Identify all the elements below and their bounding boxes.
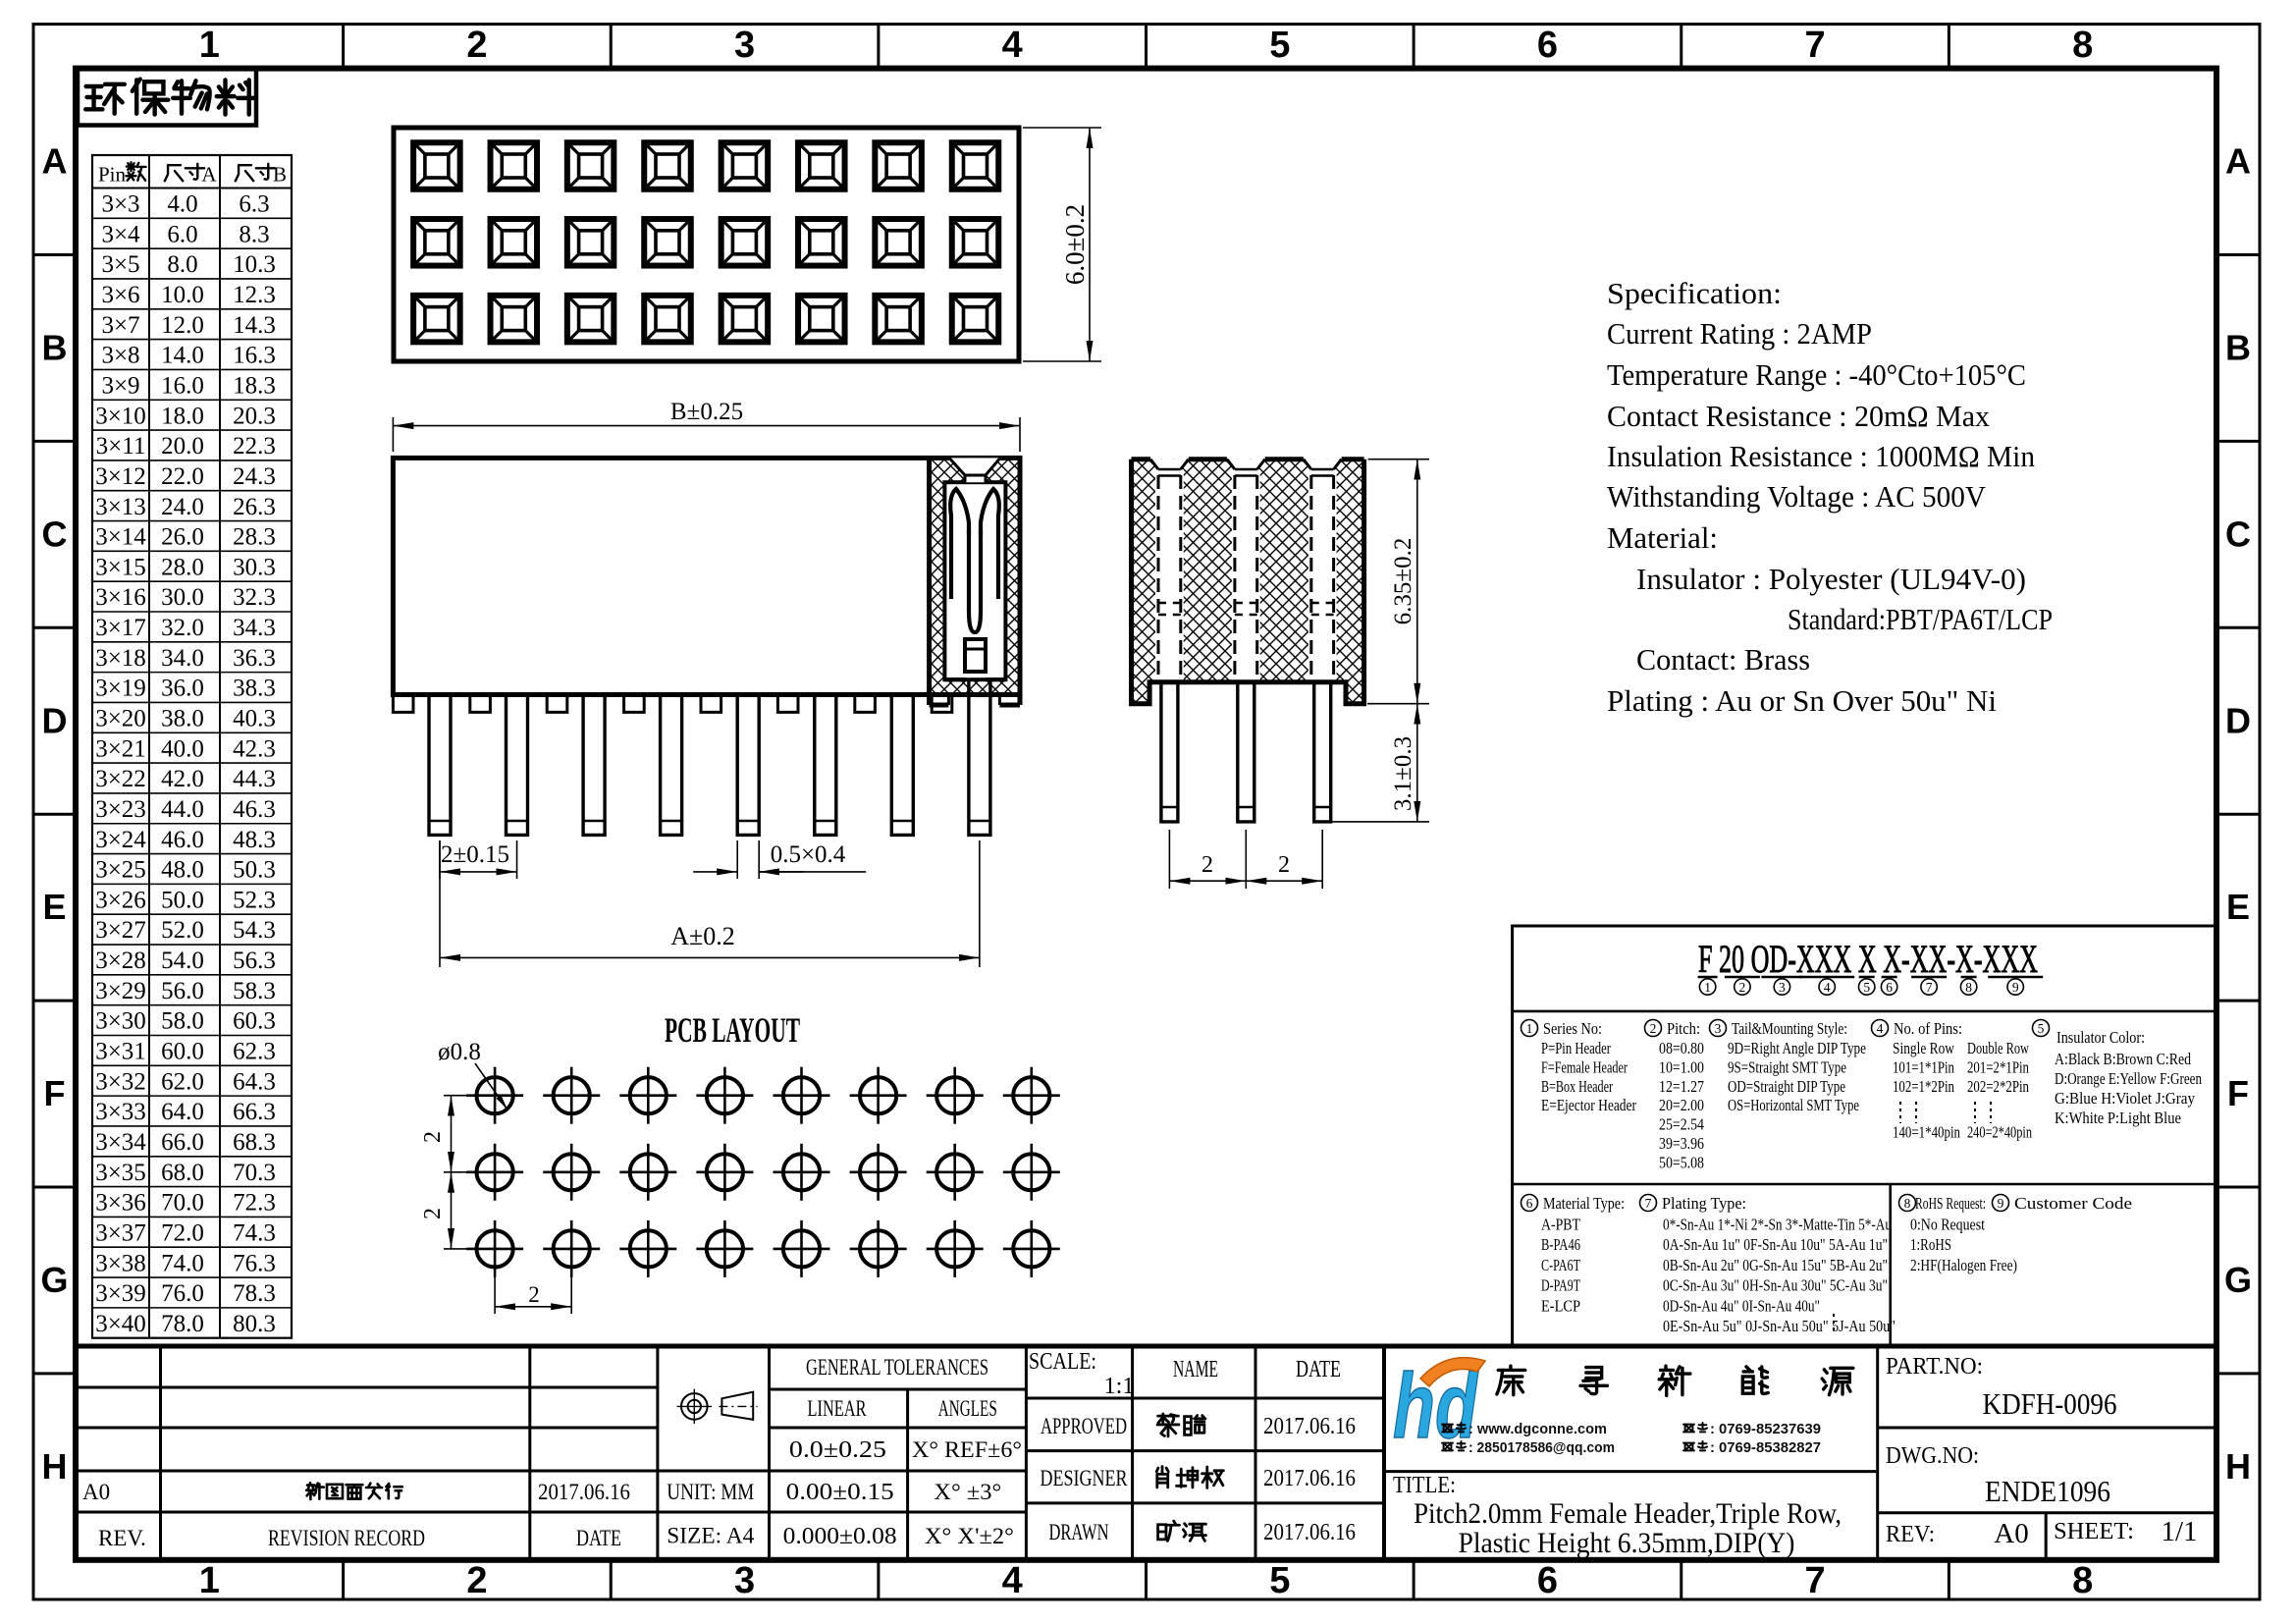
svg-text:3×22: 3×22	[95, 766, 146, 792]
svg-text:20=2.00: 20=2.00	[1659, 1096, 1704, 1114]
svg-text:40.0: 40.0	[161, 735, 204, 762]
svg-text:E=Ejector Header: E=Ejector Header	[1541, 1096, 1636, 1114]
svg-text:5: 5	[1269, 25, 1290, 66]
svg-text:3×5: 3×5	[101, 251, 139, 278]
svg-text:2: 2	[1739, 980, 1746, 995]
svg-text:Series No:: Series No:	[1543, 1019, 1602, 1038]
svg-text:D: D	[42, 700, 68, 740]
svg-text:SCALE:: SCALE:	[1029, 1349, 1096, 1375]
svg-text:B: B	[42, 327, 68, 367]
svg-text:202=2*2Pin: 202=2*2Pin	[1967, 1077, 2029, 1096]
svg-text:10.3: 10.3	[233, 251, 276, 278]
svg-text:REVISION RECORD: REVISION RECORD	[268, 1526, 425, 1550]
svg-text:C: C	[42, 514, 68, 554]
svg-text:201=2*1Pin: 201=2*1Pin	[1967, 1057, 2029, 1076]
svg-text:3×36: 3×36	[95, 1190, 146, 1217]
svg-text:3×12: 3×12	[95, 463, 146, 490]
svg-text:3×40: 3×40	[95, 1311, 146, 1337]
svg-text:4: 4	[1002, 1560, 1023, 1601]
svg-text:6.3: 6.3	[239, 191, 269, 218]
svg-text:B-PA46: B-PA46	[1541, 1235, 1580, 1254]
svg-text:KDFH-0096: KDFH-0096	[1983, 1386, 2117, 1421]
svg-text:1: 1	[199, 25, 220, 66]
svg-text:10.0: 10.0	[161, 282, 204, 308]
svg-text:SHEET:: SHEET:	[2054, 1519, 2134, 1544]
svg-text:0D-Sn-Au 4u" 0I-Sn-Au 40u": 0D-Sn-Au 4u" 0I-Sn-Au 40u"	[1663, 1296, 1820, 1315]
svg-text:18.0: 18.0	[161, 403, 204, 429]
svg-text:Standard:PBT/PA6T/LCP: Standard:PBT/PA6T/LCP	[1788, 602, 2053, 636]
svg-text:6: 6	[1886, 980, 1893, 995]
svg-text:3×33: 3×33	[95, 1099, 146, 1125]
svg-text:32.0: 32.0	[161, 615, 204, 641]
svg-text:6: 6	[1537, 1560, 1558, 1601]
svg-text:1/1: 1/1	[2161, 1516, 2197, 1547]
svg-text:3: 3	[1715, 1021, 1722, 1036]
svg-text:50.3: 50.3	[233, 857, 276, 884]
svg-text:1: 1	[1526, 1021, 1533, 1036]
svg-text:DESIGNER: DESIGNER	[1041, 1466, 1129, 1490]
svg-text:7: 7	[1926, 980, 1933, 995]
svg-text:UNIT: MM: UNIT: MM	[667, 1480, 754, 1504]
svg-text:68.0: 68.0	[161, 1160, 204, 1186]
svg-text:H: H	[42, 1446, 68, 1487]
svg-text:D: D	[2225, 700, 2251, 740]
svg-text:1: 1	[1704, 980, 1711, 995]
svg-text:52.3: 52.3	[233, 887, 276, 913]
svg-text:3×17: 3×17	[95, 615, 146, 641]
svg-text:3×23: 3×23	[95, 796, 146, 823]
svg-text:4: 4	[1002, 25, 1023, 66]
svg-text:DATE: DATE	[576, 1526, 621, 1550]
svg-text:: 0769-85382827: : 0769-85382827	[1710, 1439, 1821, 1456]
svg-text:2: 2	[1201, 852, 1213, 878]
svg-text:3×9: 3×9	[101, 373, 139, 400]
svg-text:Plating : Au or Sn Over 50u" N: Plating : Au or Sn Over 50u" Ni	[1607, 683, 1997, 718]
svg-text:1: 1	[199, 1560, 220, 1601]
svg-text:DRAWN: DRAWN	[1049, 1520, 1109, 1544]
svg-text:0.5×0.4: 0.5×0.4	[771, 841, 846, 868]
svg-text:2: 2	[1650, 1021, 1657, 1036]
svg-text:0A-Sn-Au 1u" 0F-Sn-Au 10u" 5A: 0A-Sn-Au 1u" 0F-Sn-Au 10u" 5A-Au 1u"	[1663, 1235, 1888, 1254]
svg-text:60.0: 60.0	[161, 1039, 204, 1065]
svg-text:2±0.15: 2±0.15	[441, 841, 509, 868]
svg-text:4: 4	[1824, 980, 1831, 995]
svg-text:3×27: 3×27	[95, 917, 146, 944]
svg-text:APPROVED: APPROVED	[1041, 1414, 1127, 1438]
svg-text:8.0: 8.0	[167, 251, 197, 278]
svg-text:42.3: 42.3	[233, 735, 276, 762]
svg-text:14.3: 14.3	[233, 312, 276, 339]
svg-text:Current Rating : 2AMP: Current Rating : 2AMP	[1607, 316, 1872, 351]
svg-text:Pin: Pin	[98, 163, 127, 187]
svg-text:3×21: 3×21	[95, 735, 146, 762]
svg-text:2017.06.16: 2017.06.16	[1263, 1520, 1356, 1545]
svg-text:39=3.96: 39=3.96	[1659, 1134, 1704, 1153]
svg-text:64.0: 64.0	[161, 1099, 204, 1125]
svg-text:36.3: 36.3	[233, 645, 276, 672]
svg-text:50=5.08: 50=5.08	[1659, 1153, 1704, 1171]
svg-text:A0: A0	[82, 1480, 110, 1504]
svg-text:7: 7	[1804, 25, 1825, 66]
svg-text:0B-Sn-Au 2u" 0G-Sn-Au 15u" 5B: 0B-Sn-Au 2u" 0G-Sn-Au 15u" 5B-Au 2u"	[1663, 1256, 1888, 1274]
svg-text:Pitch:: Pitch:	[1667, 1019, 1700, 1038]
svg-text:4.0: 4.0	[167, 191, 197, 218]
svg-text:: www.dgconne.com: : www.dgconne.com	[1468, 1421, 1607, 1437]
svg-text:Customer Code: Customer Code	[2014, 1194, 2132, 1213]
svg-text:REV.: REV.	[98, 1526, 146, 1550]
svg-text:A: A	[2225, 141, 2251, 182]
svg-text:9: 9	[1998, 1196, 2004, 1211]
svg-text:2: 2	[466, 25, 487, 66]
svg-text:2: 2	[420, 1208, 446, 1219]
svg-text:Contact Resistance : 20mΩ Max: Contact Resistance : 20mΩ Max	[1607, 399, 1990, 433]
svg-text:Material:: Material:	[1607, 520, 1718, 555]
svg-text:F 20 OD-XXX X X-XX-X-XXX: F 20 OD-XXX X X-XX-X-XXX	[1698, 937, 2038, 981]
svg-text:42.0: 42.0	[161, 766, 204, 792]
svg-text:78.0: 78.0	[161, 1311, 204, 1337]
svg-text:Tail&Mounting Style:: Tail&Mounting Style:	[1732, 1019, 1847, 1038]
svg-text:7: 7	[1804, 1560, 1825, 1601]
svg-text:9D=Right Angle DIP Type: 9D=Right Angle DIP Type	[1728, 1039, 1866, 1057]
svg-text:2017.06.16: 2017.06.16	[538, 1480, 630, 1504]
svg-text:Temperature Range : -40°Cto+10: Temperature Range : -40°Cto+105°C	[1607, 357, 2026, 392]
svg-text:72.3: 72.3	[233, 1190, 276, 1217]
svg-text:5: 5	[1863, 980, 1870, 995]
svg-text:28.0: 28.0	[161, 554, 204, 580]
svg-text:54.0: 54.0	[161, 947, 204, 974]
svg-text:3×34: 3×34	[95, 1129, 146, 1156]
svg-text:0:No Request: 0:No Request	[1910, 1216, 1985, 1234]
svg-text:Plastic Height 6.35mm,DIP(Y): Plastic Height 6.35mm,DIP(Y)	[1459, 1527, 1795, 1559]
svg-text:A: A	[201, 163, 217, 187]
svg-text:Specification:: Specification:	[1607, 276, 1782, 310]
svg-text:A0: A0	[1994, 1518, 2028, 1549]
svg-text:66.3: 66.3	[233, 1099, 276, 1125]
svg-text:C: C	[2225, 514, 2251, 554]
svg-text:RoHS Request:: RoHS Request:	[1915, 1194, 1986, 1213]
svg-text:C-PA6T: C-PA6T	[1541, 1256, 1580, 1274]
svg-text:3×30: 3×30	[95, 1008, 146, 1035]
svg-text:3×20: 3×20	[95, 706, 146, 732]
svg-text:B: B	[273, 163, 287, 187]
svg-text:2: 2	[528, 1282, 540, 1307]
svg-text:G: G	[2224, 1260, 2252, 1300]
svg-text:22.3: 22.3	[233, 433, 276, 460]
svg-text:3×16: 3×16	[95, 584, 146, 611]
svg-text:F: F	[44, 1073, 66, 1113]
svg-text:3×29: 3×29	[95, 978, 146, 1004]
svg-text:6.35±0.2: 6.35±0.2	[1390, 538, 1416, 625]
svg-text:48.0: 48.0	[161, 857, 204, 884]
svg-text:P=Pin Header: P=Pin Header	[1541, 1039, 1611, 1057]
svg-text:X° ±3°: X° ±3°	[934, 1480, 1001, 1504]
svg-text:3.1±0.3: 3.1±0.3	[1390, 736, 1416, 811]
svg-text:SIZE: A4: SIZE: A4	[667, 1523, 755, 1547]
svg-text:62.0: 62.0	[161, 1068, 204, 1095]
svg-text:Plating Type:: Plating Type:	[1662, 1194, 1746, 1213]
svg-text:E: E	[2226, 887, 2250, 927]
svg-text:34.0: 34.0	[161, 645, 204, 672]
svg-text:74.0: 74.0	[161, 1250, 204, 1276]
svg-text:8.3: 8.3	[239, 221, 269, 247]
svg-text:76.0: 76.0	[161, 1280, 204, 1307]
svg-text:3×24: 3×24	[95, 827, 146, 853]
svg-text:F=Female Header: F=Female Header	[1541, 1057, 1628, 1076]
svg-text:0.00±0.15: 0.00±0.15	[786, 1480, 894, 1505]
svg-text:Double Row: Double Row	[1967, 1039, 2029, 1057]
svg-text:6: 6	[1537, 25, 1558, 66]
svg-text:DATE: DATE	[1296, 1357, 1341, 1382]
svg-text:6.0±0.2: 6.0±0.2	[1060, 204, 1090, 285]
svg-text:12.0: 12.0	[161, 312, 204, 339]
svg-text:64.3: 64.3	[233, 1068, 276, 1095]
svg-text:E-LCP: E-LCP	[1541, 1296, 1580, 1315]
svg-text:3×10: 3×10	[95, 403, 146, 429]
svg-text:3×14: 3×14	[95, 524, 146, 551]
svg-text:26.0: 26.0	[161, 524, 204, 551]
svg-text:56.0: 56.0	[161, 978, 204, 1004]
svg-text:20.3: 20.3	[233, 403, 276, 429]
svg-text:102=1*2Pin: 102=1*2Pin	[1893, 1077, 1954, 1096]
svg-text:3×37: 3×37	[95, 1220, 146, 1247]
svg-text:78.3: 78.3	[233, 1280, 276, 1307]
svg-text:68.3: 68.3	[233, 1129, 276, 1156]
svg-text:0E-Sn-Au 5u" 0J-Sn-Au 50u" 5J: 0E-Sn-Au 5u" 0J-Sn-Au 50u" 5J-Au 50u"	[1663, 1317, 1896, 1335]
svg-text:52.0: 52.0	[161, 917, 204, 944]
svg-text:G:Blue H:Violet J:Gray: G:Blue H:Violet J:Gray	[2055, 1089, 2196, 1108]
svg-text:Insulator Color:: Insulator Color:	[2056, 1028, 2145, 1047]
svg-text:74.3: 74.3	[233, 1220, 276, 1247]
svg-text:101=1*1Pin: 101=1*1Pin	[1893, 1057, 1954, 1076]
svg-text:K:White P:Light Blue: K:White P:Light Blue	[2055, 1109, 2181, 1127]
svg-text:9: 9	[2012, 980, 2019, 995]
svg-text:8: 8	[1965, 980, 1972, 995]
svg-text:3×28: 3×28	[95, 947, 146, 974]
svg-text:3: 3	[734, 25, 755, 66]
svg-text:2017.06.16: 2017.06.16	[1263, 1466, 1356, 1491]
svg-text:30.0: 30.0	[161, 584, 204, 611]
svg-text:24.3: 24.3	[233, 463, 276, 490]
svg-text:1:RoHS: 1:RoHS	[1910, 1235, 1951, 1254]
svg-text:44.0: 44.0	[161, 796, 204, 823]
svg-text:Insulation Resistance : 1000MΩ: Insulation Resistance : 1000MΩ Min	[1607, 439, 2035, 473]
svg-text:60.3: 60.3	[233, 1008, 276, 1035]
svg-text:1:1: 1:1	[1104, 1374, 1135, 1399]
svg-text:3×7: 3×7	[101, 312, 139, 339]
svg-text:3×3: 3×3	[101, 191, 139, 218]
svg-text:28.3: 28.3	[233, 524, 276, 551]
svg-text:48.3: 48.3	[233, 827, 276, 853]
svg-text:ø0.8: ø0.8	[438, 1039, 481, 1065]
svg-text:16.0: 16.0	[161, 373, 204, 400]
svg-text:56.3: 56.3	[233, 947, 276, 974]
svg-text:PCB LAYOUT: PCB LAYOUT	[665, 1010, 800, 1050]
svg-text:Single Row: Single Row	[1893, 1039, 1954, 1057]
svg-text:H: H	[2225, 1446, 2251, 1487]
svg-text:3×19: 3×19	[95, 676, 146, 702]
svg-text:30.3: 30.3	[233, 554, 276, 580]
svg-text:5: 5	[2038, 1021, 2045, 1036]
svg-text:G: G	[40, 1260, 68, 1300]
svg-text:3×15: 3×15	[95, 554, 146, 580]
svg-text:12=1.27: 12=1.27	[1659, 1077, 1704, 1096]
svg-text:58.3: 58.3	[233, 978, 276, 1004]
svg-text:B±0.25: B±0.25	[670, 399, 743, 425]
svg-text:10=1.00: 10=1.00	[1659, 1057, 1704, 1076]
svg-text:8: 8	[2072, 25, 2093, 66]
svg-text:3: 3	[1779, 980, 1786, 995]
svg-text:GENERAL TOLERANCES: GENERAL TOLERANCES	[806, 1355, 988, 1380]
svg-text:No. of Pins:: No. of Pins:	[1894, 1019, 1962, 1038]
svg-text:3×8: 3×8	[101, 343, 139, 369]
svg-text:: 2850178586@qq.com: : 2850178586@qq.com	[1468, 1439, 1615, 1456]
svg-text:B=Box Header: B=Box Header	[1541, 1077, 1613, 1096]
svg-text:2:HF(Halogen Free): 2:HF(Halogen Free)	[1910, 1256, 2017, 1274]
svg-text:36.0: 36.0	[161, 676, 204, 702]
svg-text:TITLE:: TITLE:	[1393, 1473, 1456, 1498]
svg-text:66.0: 66.0	[161, 1129, 204, 1156]
svg-text:62.3: 62.3	[233, 1039, 276, 1065]
svg-text:0C-Sn-Au 3u" 0H-Sn-Au 30u" 5C: 0C-Sn-Au 3u" 0H-Sn-Au 30u" 5C-Au 3u"	[1663, 1276, 1888, 1295]
svg-text:NAME: NAME	[1173, 1357, 1218, 1382]
svg-text:LINEAR: LINEAR	[808, 1396, 867, 1421]
svg-text:3×38: 3×38	[95, 1250, 146, 1276]
svg-text:80.3: 80.3	[233, 1311, 276, 1337]
svg-text:3×6: 3×6	[101, 282, 139, 308]
svg-text:140=1*40pin: 140=1*40pin	[1893, 1123, 1960, 1142]
svg-text:2: 2	[466, 1560, 487, 1601]
svg-text:A±0.2: A±0.2	[670, 922, 735, 950]
svg-text:3×4: 3×4	[101, 221, 140, 247]
svg-text:3×35: 3×35	[95, 1160, 146, 1186]
svg-text:9S=Straight SMT Type: 9S=Straight SMT Type	[1728, 1057, 1846, 1076]
svg-text:DWG.NO:: DWG.NO:	[1886, 1443, 1979, 1469]
svg-text:3×26: 3×26	[95, 887, 146, 913]
svg-text:34.3: 34.3	[233, 615, 276, 641]
svg-text:Material Type:: Material Type:	[1543, 1194, 1625, 1213]
svg-text:46.0: 46.0	[161, 827, 204, 853]
svg-text:70.0: 70.0	[161, 1190, 204, 1217]
svg-text:3×25: 3×25	[95, 857, 146, 884]
svg-text:3×39: 3×39	[95, 1280, 146, 1307]
svg-text:Pitch2.0mm Female Header,Tripl: Pitch2.0mm Female Header,Triple Row,	[1414, 1497, 1842, 1530]
svg-text:6.0: 6.0	[167, 221, 197, 247]
svg-text:08=0.80: 08=0.80	[1659, 1039, 1704, 1057]
svg-text:Contact: Brass: Contact: Brass	[1636, 642, 1810, 677]
svg-text:72.0: 72.0	[161, 1220, 204, 1247]
svg-text:26.3: 26.3	[233, 494, 276, 520]
svg-text:70.3: 70.3	[233, 1160, 276, 1186]
svg-text:Insulator : Polyester (UL94V-0: Insulator : Polyester (UL94V-0)	[1636, 562, 2026, 596]
svg-text:F: F	[2227, 1073, 2249, 1113]
svg-text:25=2.54: 25=2.54	[1659, 1115, 1704, 1134]
svg-text:0*-Sn-Au 1*-Ni 2*-Sn 3*-Matte-: 0*-Sn-Au 1*-Ni 2*-Sn 3*-Matte-Tin 5*-Au	[1663, 1216, 1892, 1234]
svg-text:PART.NO:: PART.NO:	[1886, 1354, 1983, 1380]
svg-text:A: A	[42, 141, 68, 182]
svg-text:5: 5	[1269, 1560, 1290, 1601]
svg-text:6: 6	[1526, 1196, 1533, 1211]
svg-text:240=2*40pin: 240=2*40pin	[1967, 1123, 2032, 1142]
svg-text:50.0: 50.0	[161, 887, 204, 913]
svg-text:8: 8	[1904, 1196, 1911, 1211]
svg-text:12.3: 12.3	[233, 282, 276, 308]
svg-text:OD=Straight DIP Type: OD=Straight DIP Type	[1728, 1077, 1845, 1096]
svg-text:38.0: 38.0	[161, 706, 204, 732]
svg-text:OS=Horizontal SMT Type: OS=Horizontal SMT Type	[1728, 1096, 1859, 1114]
svg-text:44.3: 44.3	[233, 766, 276, 792]
svg-text:X° REF±6°: X° REF±6°	[912, 1437, 1022, 1462]
svg-text:3: 3	[734, 1560, 755, 1601]
svg-text:24.0: 24.0	[161, 494, 204, 520]
svg-text:32.3: 32.3	[233, 584, 276, 611]
svg-text:0.000±0.08: 0.000±0.08	[783, 1524, 897, 1549]
svg-text:3×31: 3×31	[95, 1039, 146, 1065]
svg-text:22.0: 22.0	[161, 463, 204, 490]
svg-text:54.3: 54.3	[233, 917, 276, 944]
svg-text:D:Orange E:Yellow F:Green: D:Orange E:Yellow F:Green	[2055, 1069, 2202, 1088]
svg-text:3×11: 3×11	[96, 433, 146, 460]
svg-text:A-PBT: A-PBT	[1541, 1216, 1580, 1234]
svg-text:REV:: REV:	[1886, 1522, 1935, 1547]
svg-text:14.0: 14.0	[161, 343, 204, 369]
svg-text:2: 2	[420, 1131, 446, 1143]
svg-text:A:Black B:Brown C:Red: A:Black B:Brown C:Red	[2055, 1050, 2192, 1068]
svg-text:2: 2	[1278, 852, 1290, 878]
svg-text:2017.06.16: 2017.06.16	[1263, 1414, 1356, 1439]
svg-text:0.0±0.25: 0.0±0.25	[789, 1437, 886, 1463]
svg-text:58.0: 58.0	[161, 1008, 204, 1035]
svg-text:4: 4	[1877, 1021, 1884, 1036]
svg-text:3×32: 3×32	[95, 1068, 146, 1095]
svg-text:20.0: 20.0	[161, 433, 204, 460]
svg-text:Withstanding Voltage : AC 500V: Withstanding Voltage : AC 500V	[1607, 479, 1987, 514]
svg-text:ENDE1096: ENDE1096	[1985, 1474, 2110, 1508]
svg-text:40.3: 40.3	[233, 706, 276, 732]
svg-text:B: B	[2225, 327, 2251, 367]
svg-text:18.3: 18.3	[233, 373, 276, 400]
svg-text:38.3: 38.3	[233, 676, 276, 702]
svg-text:D-PA9T: D-PA9T	[1541, 1276, 1580, 1295]
svg-text:E: E	[42, 887, 66, 927]
svg-text:46.3: 46.3	[233, 796, 276, 823]
svg-text:3×13: 3×13	[95, 494, 146, 520]
svg-text:16.3: 16.3	[233, 343, 276, 369]
svg-text:7: 7	[1645, 1196, 1652, 1211]
svg-text:: 0769-85237639: : 0769-85237639	[1710, 1421, 1821, 1437]
svg-text:8: 8	[2072, 1560, 2093, 1601]
svg-text:3×18: 3×18	[95, 645, 146, 672]
svg-text:X° X'±2°: X° X'±2°	[925, 1524, 1014, 1548]
svg-text:76.3: 76.3	[233, 1250, 276, 1276]
svg-text:ANGLES: ANGLES	[938, 1396, 997, 1421]
